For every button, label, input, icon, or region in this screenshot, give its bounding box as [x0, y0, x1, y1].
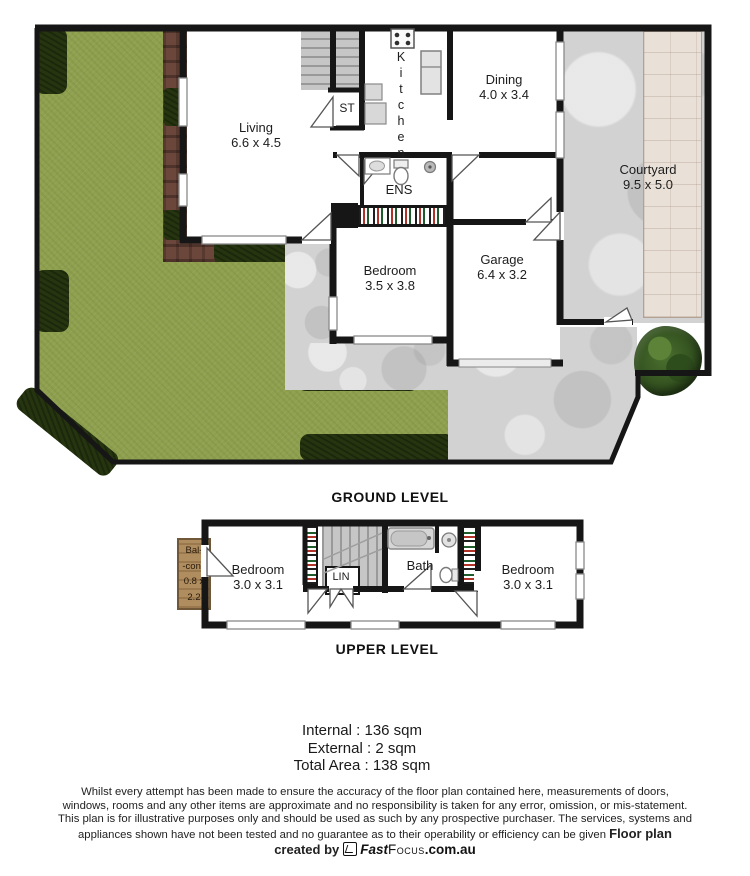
bedroom-ground-label: Bedroom3.5 x 3.8 — [364, 263, 417, 293]
ground-plan-linework — [0, 0, 750, 512]
stove-icon — [391, 29, 414, 48]
wall-block — [331, 203, 358, 228]
storage-label: ST — [339, 101, 354, 115]
total-area: Total Area : 138 sqm — [0, 757, 724, 775]
area-summary: Internal : 136 sqm External : 2 sqm Tota… — [0, 722, 724, 775]
garage-door — [459, 359, 551, 367]
fastfocus-logo-icon — [343, 842, 357, 856]
bedroom2-label: Bedroom3.0 x 3.1 — [502, 562, 555, 592]
floor-plan-page: Living6.6 x 4.5 Kitchen Dining4.0 x 3.4 … — [0, 0, 750, 876]
upper-plan-linework — [0, 515, 750, 645]
bedroom1-label: Bedroom3.0 x 3.1 — [232, 562, 285, 592]
disclaimer: Whilst every attempt has been made to en… — [58, 786, 692, 859]
ground-level-plan: Living6.6 x 4.5 Kitchen Dining4.0 x 3.4 … — [0, 0, 750, 512]
kitchen-label: Kitchen — [394, 50, 408, 162]
cistern-icon — [452, 569, 458, 581]
linen-label: LIN — [332, 571, 349, 583]
ground-level-caption: GROUND LEVEL — [331, 489, 448, 505]
living-label: Living6.6 x 4.5 — [231, 120, 281, 150]
stair-winders — [324, 533, 382, 573]
toilet-icon — [440, 568, 452, 583]
external-area: External : 2 sqm — [0, 740, 724, 758]
dining-label: Dining4.0 x 3.4 — [479, 72, 529, 102]
upper-level-plan: Bal- -cony 0.8 x 2.2 — [0, 515, 750, 645]
bench-unit — [365, 103, 386, 124]
brand-name: FastFocus.com.au — [360, 842, 476, 857]
garage-label: Garage6.4 x 3.2 — [477, 252, 527, 282]
disclaimer-text: Whilst every attempt has been made to en… — [58, 786, 692, 841]
courtyard-label: Courtyard9.5 x 5.0 — [619, 162, 676, 192]
upper-level-caption: UPPER LEVEL — [336, 641, 439, 657]
fridge-icon — [421, 51, 441, 94]
bench-unit — [365, 84, 382, 100]
ensuite-label: ENS — [386, 182, 413, 197]
internal-area: Internal : 136 sqm — [0, 722, 724, 740]
bath-label: Bath — [407, 558, 434, 573]
